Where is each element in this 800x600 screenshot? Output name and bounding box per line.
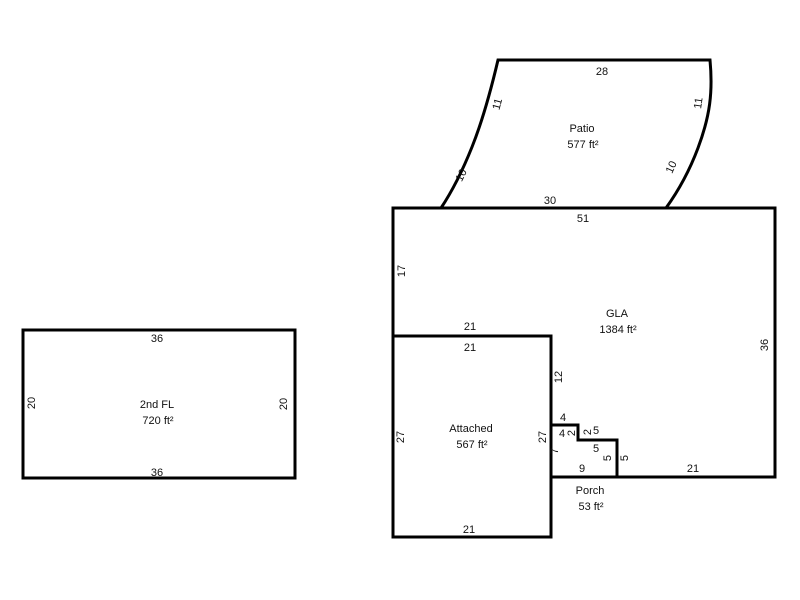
porch-dim-label: 5: [593, 443, 599, 455]
attached-shape: Attached567 ft²21272721: [393, 336, 551, 537]
second-floor-dim-label: 20: [278, 398, 290, 410]
patio-name-label: Patio: [569, 123, 594, 135]
second-floor-area-label: 720 ft²: [142, 415, 174, 427]
gla-dim-label: 12: [553, 371, 565, 383]
attached-dim-label: 27: [537, 431, 549, 443]
porch-dim-label: 7: [549, 448, 561, 454]
attached-name-label: Attached: [449, 423, 492, 435]
second-floor-name-label: 2nd FL: [140, 399, 174, 411]
patio-dim-label: 30: [544, 195, 556, 207]
porch-dim-label: 2: [566, 430, 578, 436]
porch-dim-label: 5: [602, 455, 614, 461]
attached-dim-label: 27: [395, 431, 407, 443]
gla-dim-label: 4: [560, 412, 566, 424]
patio-area-label: 577 ft²: [567, 139, 599, 151]
porch-area-label: 53 ft²: [578, 501, 603, 513]
attached-dim-label: 21: [464, 342, 476, 354]
second-floor-dim-label: 36: [151, 467, 163, 479]
gla-name-label: GLA: [606, 308, 629, 320]
second-floor-dim-label: 20: [26, 397, 38, 409]
gla-dim-label: 36: [759, 339, 771, 351]
patio-dim-label: 11: [692, 97, 705, 110]
gla-area-label: 1384 ft²: [599, 324, 637, 336]
gla-dim-label: 5: [619, 455, 631, 461]
attached-dim-label: 21: [463, 524, 475, 536]
second-floor-dim-label: 36: [151, 333, 163, 345]
gla-dim-label: 21: [464, 321, 476, 333]
floorplan-canvas: Patio577 ft²281110111030GLA1384 ft²51173…: [0, 0, 800, 600]
second-floor-shape: 2nd FL720 ft²36202036: [23, 330, 295, 479]
porch-dim-label: 9: [579, 463, 585, 475]
gla-dim-label: 51: [577, 213, 589, 225]
porch-dim-label: 4: [559, 428, 565, 440]
gla-dim-label: 5: [593, 425, 599, 437]
gla-dim-label: 17: [396, 265, 408, 277]
patio-shape: Patio577 ft²281110111030: [441, 60, 711, 208]
attached-outline: [393, 336, 551, 537]
gla-dim-label: 21: [687, 463, 699, 475]
attached-area-label: 567 ft²: [456, 439, 488, 451]
porch-name-label: Porch: [576, 485, 605, 497]
patio-dim-label: 28: [596, 66, 608, 78]
floorplan-sketch: Patio577 ft²281110111030GLA1384 ft²51173…: [0, 0, 800, 600]
